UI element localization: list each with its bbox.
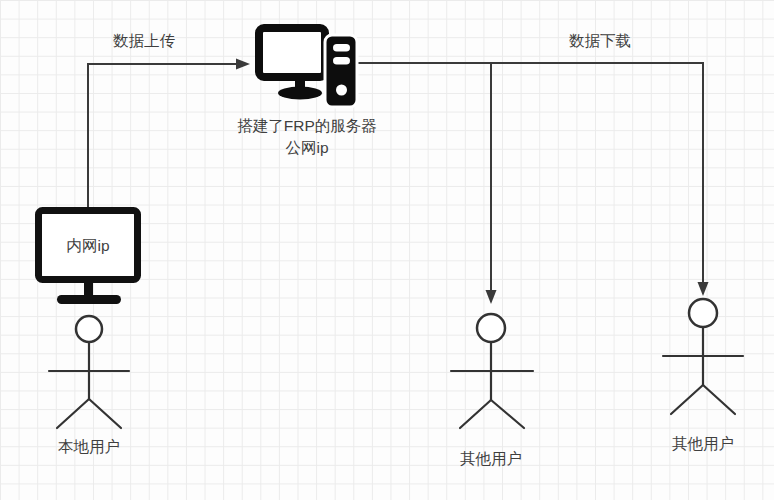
download-arrowhead-center xyxy=(486,290,497,304)
local-user-label: 本地用户 xyxy=(58,438,120,456)
download-arrowhead-right xyxy=(698,282,709,296)
local-monitor-icon xyxy=(39,211,138,305)
other-user-center-label: 其他用户 xyxy=(460,450,522,468)
other-user-right-figure xyxy=(663,299,743,414)
other-user-center-head xyxy=(477,314,505,342)
frp-server-label: 搭建了FRP的服务器 公网ip xyxy=(237,115,377,159)
upload-arrow-label: 数据上传 xyxy=(113,32,175,50)
local-user-figure xyxy=(49,316,129,428)
download-arrow-label: 数据下载 xyxy=(569,32,631,50)
upload-arrow xyxy=(88,59,250,208)
other-user-center-figure xyxy=(451,314,533,428)
other-user-right-label: 其他用户 xyxy=(672,435,734,453)
local-user-head xyxy=(76,316,102,342)
frp-server-label-line2: 公网ip xyxy=(237,137,377,159)
other-user-right-head xyxy=(689,299,717,327)
frp-server-label-line1: 搭建了FRP的服务器 xyxy=(237,115,377,137)
frp-server-icon xyxy=(259,28,357,107)
upload-arrowhead xyxy=(236,59,250,70)
download-arrow xyxy=(357,63,709,304)
diagram-canvas: 数据上传 数据下载 搭建了FRP的服务器 公网ip 内网ip 本地用户 其他用户… xyxy=(0,0,774,500)
diagram-shapes xyxy=(0,0,774,500)
local-monitor-label: 内网ip xyxy=(66,237,109,255)
